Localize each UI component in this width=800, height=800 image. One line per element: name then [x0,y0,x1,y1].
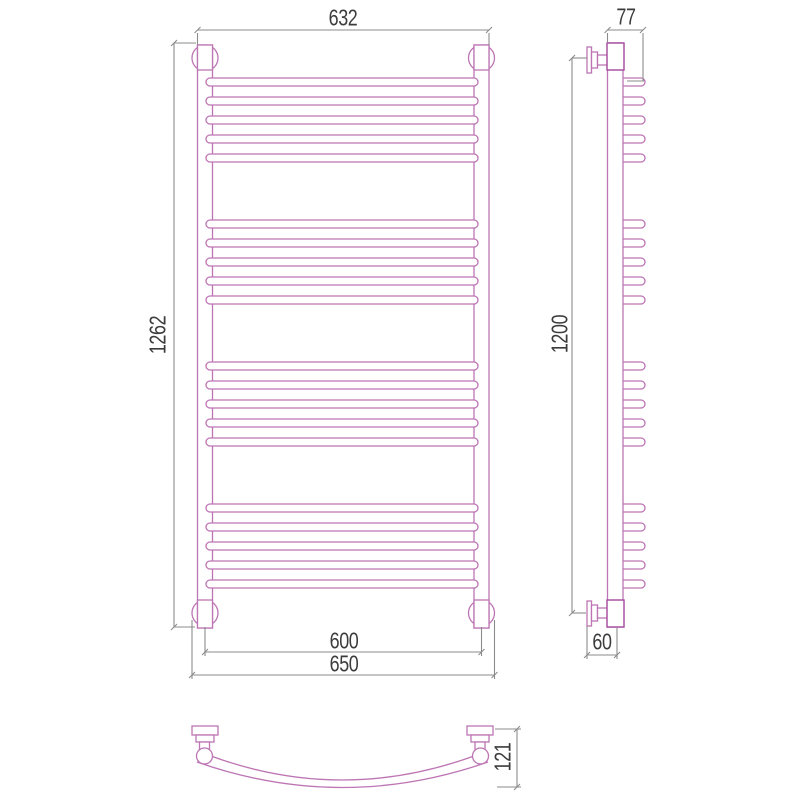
side-flange-top [592,52,598,68]
front-cap-bottom-left [198,600,213,628]
towel-bar [206,504,478,512]
drawing-canvas: 632 1262 600 650 77 1200 60 121 [0,0,800,800]
towel-bar [206,277,478,285]
drawing-linework [0,0,800,800]
dim-label-front-height: 1262 [145,316,172,354]
plan-flange-right [471,735,489,742]
dim-label-plan-depth: 121 [490,743,517,772]
towel-bar [206,561,478,569]
towel-bar [206,580,478,588]
towel-bar [206,97,478,105]
plan-rail-section-right [473,748,489,764]
side-wall-plate-bottom [587,601,592,626]
towel-bar [206,438,478,446]
plan-rail-section-left [197,748,213,764]
plan-wall-plate-left [192,726,218,735]
plan-bar-top-edge [211,756,474,780]
plan-wall-plate-right [467,726,493,735]
towel-bar [206,542,478,550]
towel-bar [206,239,478,247]
towel-bar [206,78,478,86]
dim-label-side-bottom-depth: 60 [592,629,611,656]
front-cap-top-right [474,45,489,70]
side-cap-top [607,43,624,70]
side-flange-bottom [592,605,598,621]
dim-label-front-top-width: 632 [329,5,358,32]
front-left-rail [198,45,213,628]
towel-bar [206,135,478,143]
front-cap-top-left [198,45,213,70]
side-stem-top [598,55,608,65]
towel-bar [206,296,478,304]
front-view [192,45,495,628]
side-rail [608,43,624,627]
front-bar-group [206,78,478,588]
towel-bar [206,116,478,124]
towel-bar [206,419,478,427]
dim-label-side-top-depth: 77 [616,4,635,31]
plan-view [192,726,493,788]
towel-bar [206,258,478,266]
dim-label-side-mount-height: 1200 [547,315,574,353]
towel-bar [206,154,478,162]
towel-bar [206,362,478,370]
towel-bar [206,381,478,389]
front-cap-bottom-right [474,600,489,628]
side-stem-bottom [598,608,608,618]
side-wall-plate-top [587,47,592,73]
towel-bar [206,220,478,228]
towel-bar [206,400,478,408]
front-right-rail [474,45,489,628]
plan-flange-left [196,735,214,742]
side-view [587,43,645,627]
dim-label-front-overall-width: 650 [330,651,359,678]
side-cap-bottom [607,600,624,627]
towel-bar [206,523,478,531]
